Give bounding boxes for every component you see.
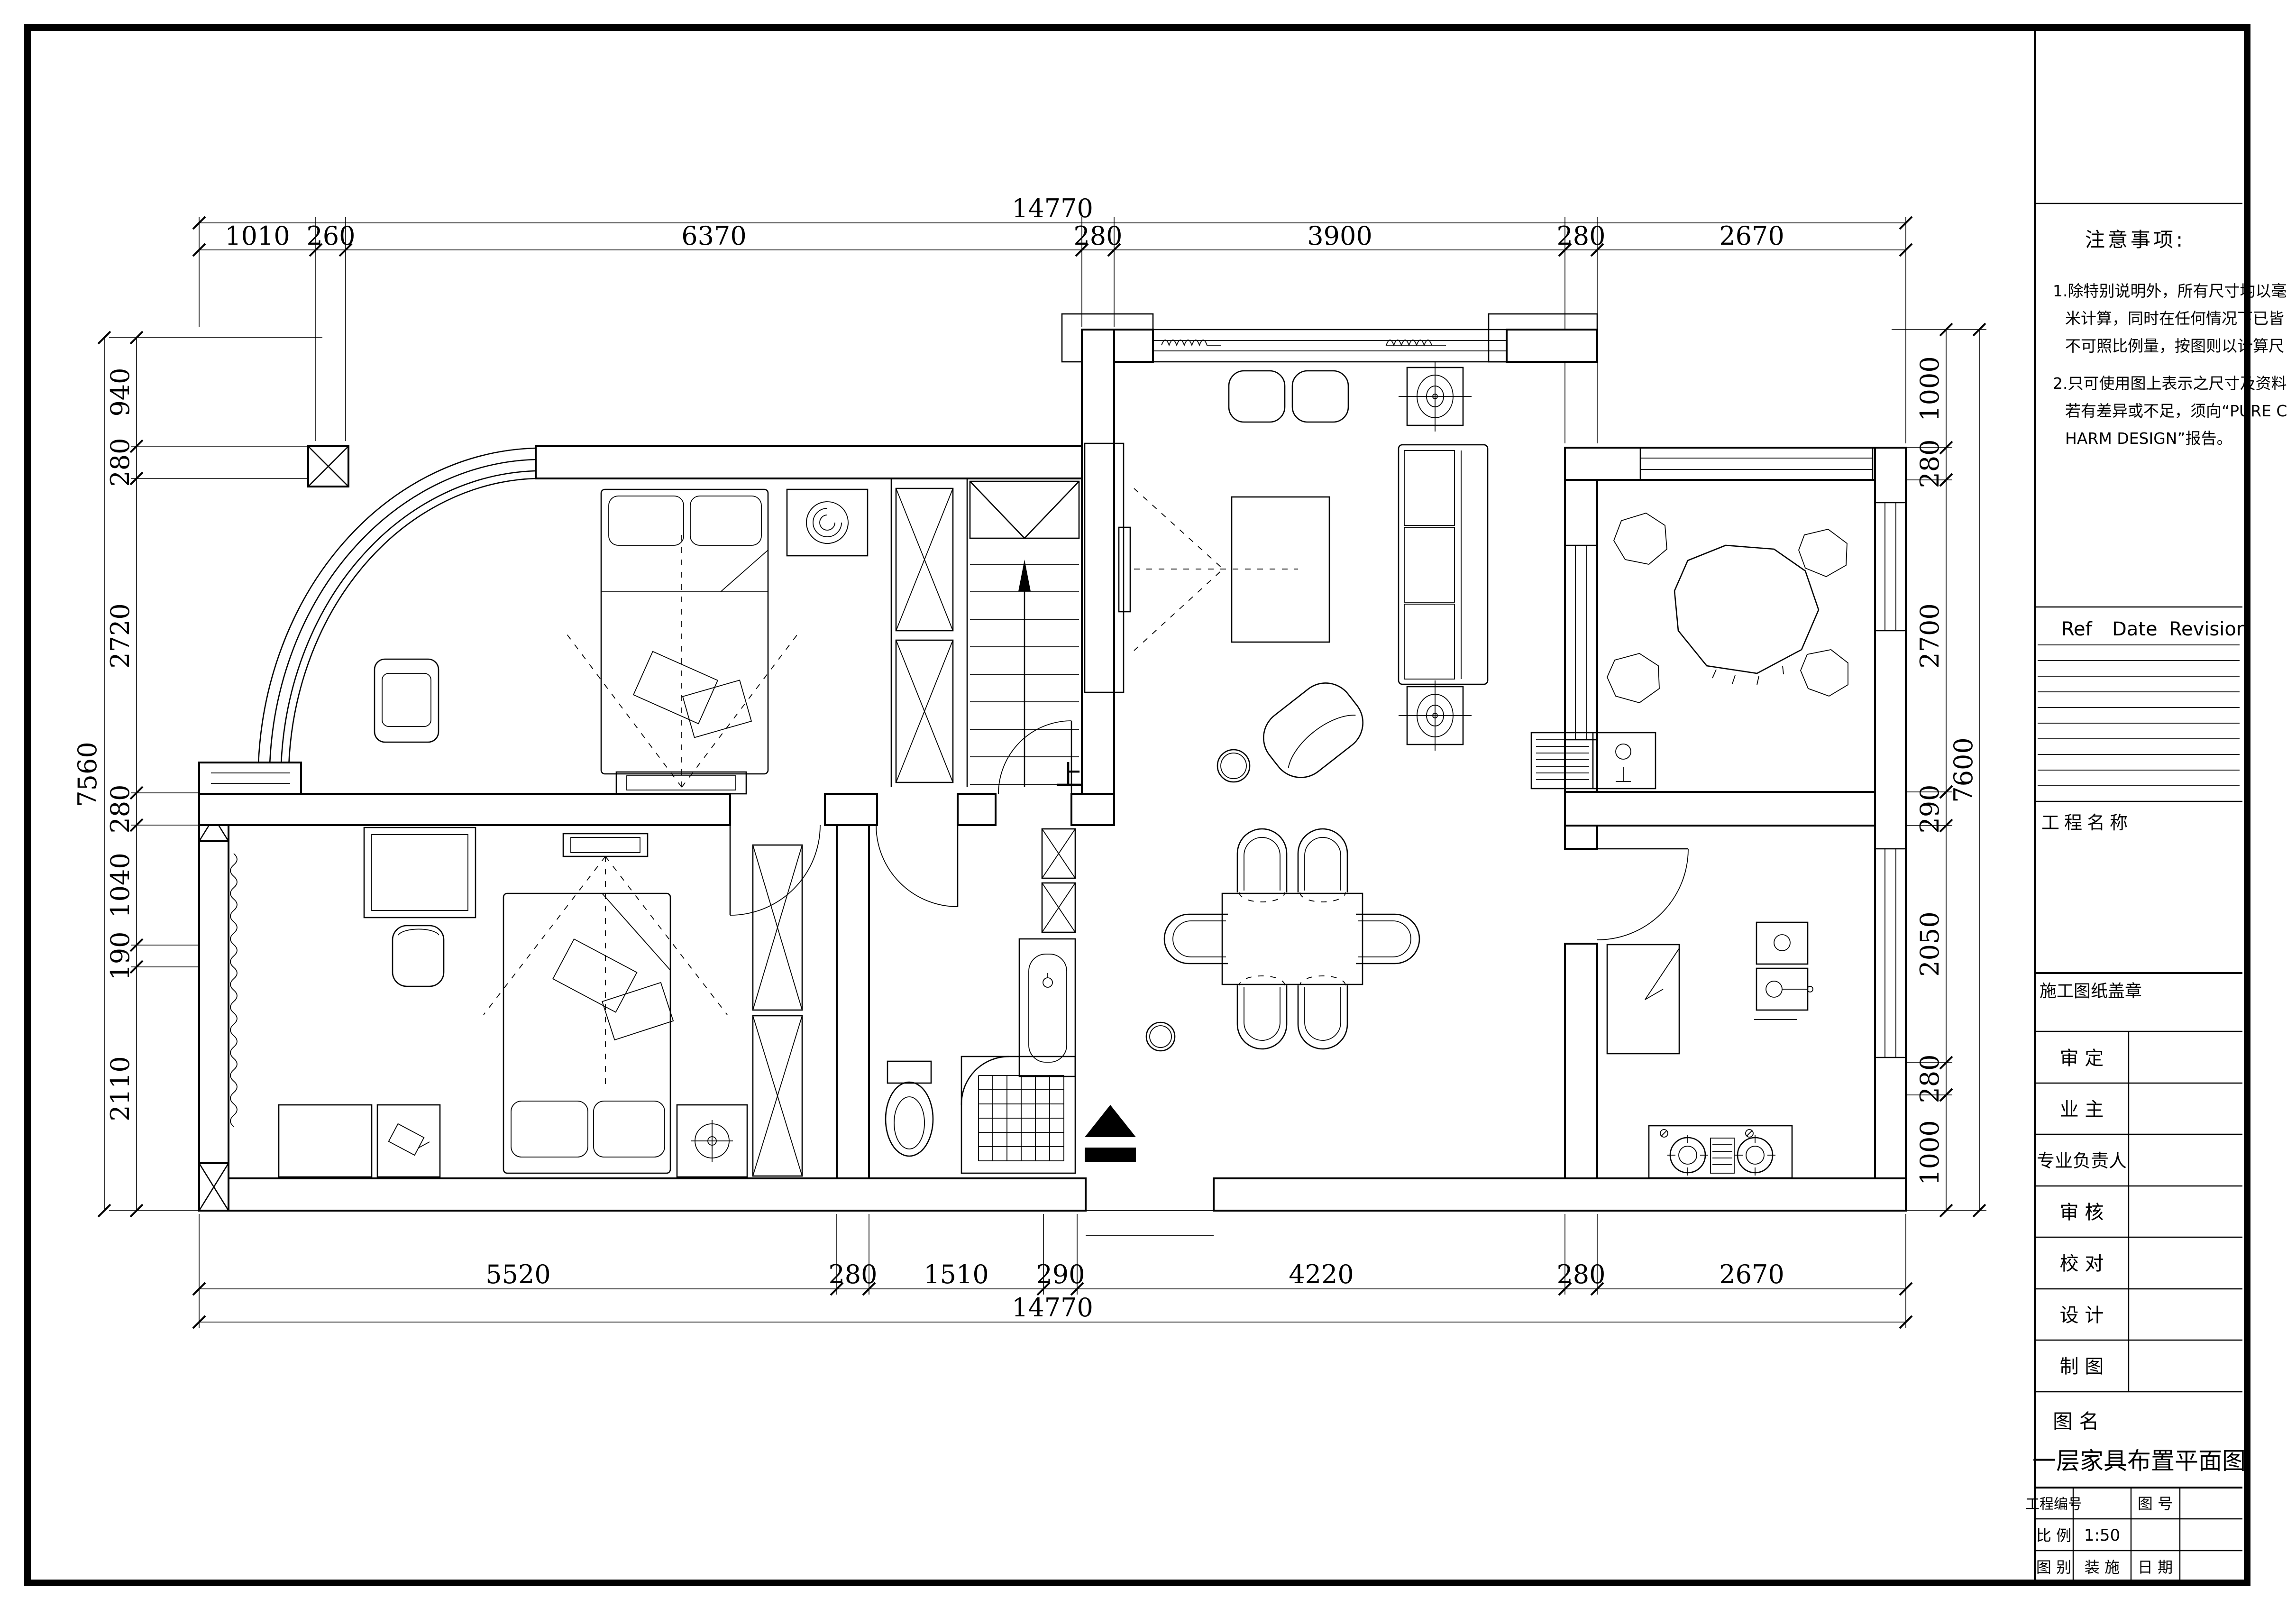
dim-chain-top: 14770 1010 260 6370 280 3900 280 2670 — [193, 193, 1912, 443]
wardrobe — [896, 488, 953, 782]
side-table — [1217, 750, 1250, 782]
sign-row-label: 业 主 — [2060, 1099, 2104, 1121]
dresser — [364, 827, 476, 918]
dim-top-3: 280 — [1073, 221, 1122, 251]
bed — [503, 893, 673, 1173]
dining-chair — [1298, 829, 1347, 902]
scale-value: 1:50 — [2084, 1526, 2120, 1545]
nightstand — [787, 489, 868, 556]
tv-dresser — [564, 531, 800, 794]
dim-top-5: 280 — [1556, 221, 1605, 251]
rev-ref-header: Ref — [2061, 618, 2093, 640]
dim-bottom-1: 280 — [828, 1259, 877, 1289]
tv — [484, 834, 727, 1086]
notes-line: 米计算，同时在任何情况下已皆 — [2065, 309, 2284, 328]
seal-label: 施工图纸盖章 — [2040, 982, 2142, 1001]
dim-bottom-0: 5520 — [485, 1259, 550, 1289]
floor-drain — [1146, 1022, 1175, 1051]
stove — [1649, 1126, 1792, 1178]
dim-top-1: 260 — [306, 221, 355, 251]
desk-chair — [393, 926, 444, 986]
dining — [1085, 829, 1419, 1162]
nightstands — [279, 1105, 747, 1177]
dim-left-6: 2110 — [105, 1056, 135, 1121]
dining-chair — [1237, 976, 1287, 1049]
pouf — [1292, 371, 1348, 422]
column-box — [199, 1163, 229, 1211]
sign-row-label: 校 对 — [2060, 1253, 2104, 1275]
dining-chair — [1356, 914, 1419, 964]
notes-line: 1.除特别说明外，所有尺寸均以毫 — [2053, 282, 2287, 300]
dim-bottom-2: 1510 — [924, 1259, 988, 1289]
vanity-sink — [1019, 939, 1075, 1076]
dim-right-1: 280 — [1915, 439, 1945, 488]
dim-left-5: 190 — [105, 931, 135, 980]
dim-top-total: 14770 — [1012, 193, 1093, 223]
dim-left-2: 2720 — [105, 603, 135, 668]
patio-stones — [1607, 513, 1848, 703]
dim-left-1: 280 — [105, 438, 135, 487]
dim-left-4: 1040 — [105, 853, 135, 918]
stairs-up-label: 上 — [1055, 759, 1083, 791]
dim-bottom-4: 4220 — [1289, 1259, 1354, 1289]
dim-top-0: 1010 — [225, 221, 290, 251]
drawing-no-label: 图 号 — [2138, 1495, 2173, 1513]
dim-bottom-total: 14770 — [1012, 1293, 1093, 1323]
sign-row-label: 设 计 — [2060, 1305, 2104, 1326]
drawing-name: 一层家具布置平面图 — [2032, 1447, 2246, 1475]
dining-table — [1222, 893, 1363, 984]
speaker — [1399, 680, 1472, 751]
utility-counter — [1531, 733, 1656, 789]
dim-bottom-3: 290 — [1036, 1259, 1085, 1289]
speaker — [1399, 361, 1472, 432]
sofa — [1399, 445, 1488, 684]
date-label: 日 期 — [2138, 1558, 2173, 1576]
notes-line: 2.只可使用图上表示之尺寸及资料 — [2053, 374, 2287, 393]
bed — [601, 489, 768, 774]
project-no-label: 工程编号 — [2025, 1496, 2082, 1513]
dim-left-0: 940 — [105, 368, 135, 416]
dim-top-4: 3900 — [1307, 221, 1372, 251]
dining-chair — [1237, 829, 1287, 902]
dim-right-total: 7600 — [1948, 737, 1978, 802]
coffee-table — [1232, 497, 1329, 642]
dim-right-5: 280 — [1915, 1054, 1945, 1103]
dim-bottom-6: 2670 — [1719, 1259, 1784, 1289]
sink-counter — [1754, 922, 1813, 1020]
shaft — [1042, 829, 1075, 932]
dim-right-4: 2050 — [1915, 911, 1945, 976]
wardrobe — [753, 845, 802, 1176]
notes-line: 不可照比例量，按图则以计算尺 — [2065, 337, 2284, 355]
floor-drain-inner — [1150, 1026, 1171, 1047]
floorplan-sheet: 14770 1010 260 6370 280 3900 280 2670 55… — [0, 0, 2296, 1608]
pouf — [1229, 371, 1285, 422]
bedroom1 — [375, 478, 953, 794]
tv-unit — [1085, 443, 1298, 692]
sign-row-label: 制 图 — [2060, 1356, 2104, 1378]
dining-chair — [1298, 976, 1347, 1049]
scale-label: 比 例 — [2036, 1526, 2071, 1544]
sign-row-label: 审 定 — [2060, 1047, 2104, 1069]
dining-chair — [1164, 914, 1228, 964]
stairs: 上 — [967, 478, 1083, 791]
column-box — [308, 446, 348, 487]
bedroom2 — [279, 827, 802, 1177]
armchair — [375, 659, 439, 742]
dim-right-6: 1000 — [1915, 1120, 1945, 1185]
drawing-name-label: 图 名 — [2053, 1410, 2099, 1433]
toilet — [886, 1061, 933, 1156]
bathroom — [886, 829, 1075, 1173]
chaise-lounge — [1252, 671, 1374, 789]
revision-rows — [2038, 645, 2240, 786]
dim-right-3: 290 — [1915, 784, 1945, 833]
dim-top-2: 6370 — [681, 221, 746, 251]
notes-line: 若有差异或不足，须向“PURE C — [2065, 402, 2287, 420]
dim-top-6: 2670 — [1719, 221, 1784, 251]
entry-arrow — [1085, 1105, 1136, 1162]
notes-line: HARM DESIGN”报告。 — [2065, 429, 2232, 448]
doors — [730, 721, 1688, 940]
dim-bottom-5: 280 — [1556, 1259, 1605, 1289]
dim-left-3: 280 — [105, 784, 135, 833]
dim-chain-bottom: 5520 280 1510 290 4220 280 2670 14770 — [193, 1214, 1912, 1328]
side-table-inner — [1221, 753, 1246, 779]
category-value: 装 施 — [2085, 1558, 2120, 1576]
living-room — [1085, 361, 1488, 789]
walls — [199, 314, 1906, 1235]
sign-row-label: 审 核 — [2060, 1202, 2104, 1223]
dim-right-0: 1000 — [1915, 356, 1945, 421]
sign-row-label: 专业负责人 — [2037, 1150, 2127, 1171]
project-name-label: 工程名称 — [2041, 812, 2132, 833]
dim-left-total: 7560 — [73, 742, 102, 807]
dim-right-2: 2700 — [1915, 603, 1945, 668]
notes-title: 注意事项: — [2085, 228, 2186, 251]
rev-revision-header: Revision — [2169, 618, 2248, 640]
fridge — [1607, 945, 1679, 1054]
rev-date-header: Date — [2112, 618, 2158, 640]
shower — [961, 1057, 1075, 1173]
category-label: 图 别 — [2036, 1558, 2071, 1576]
